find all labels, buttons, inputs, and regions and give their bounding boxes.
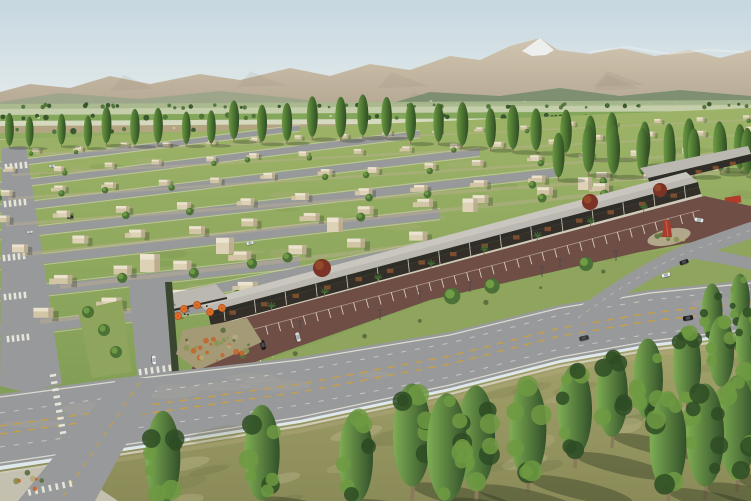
shrub xyxy=(539,286,542,289)
shrub xyxy=(35,478,38,481)
shrub xyxy=(233,349,239,355)
pedestrian xyxy=(187,308,189,310)
shrub xyxy=(247,343,250,346)
scene-canvas xyxy=(0,0,751,501)
shrub xyxy=(362,334,367,339)
storefront-glow xyxy=(293,294,300,298)
shrub xyxy=(25,470,31,476)
shrub xyxy=(191,348,197,354)
shrub xyxy=(239,350,244,355)
pedestrian xyxy=(217,316,219,318)
aerial-render: Aerial architectural rendering of a dese… xyxy=(0,0,751,501)
shrub xyxy=(203,338,209,344)
pedestrian xyxy=(187,314,189,316)
shrub xyxy=(681,237,685,241)
shrub xyxy=(187,342,189,344)
shrub xyxy=(222,338,227,343)
shrub xyxy=(185,338,188,341)
shrub xyxy=(17,479,21,483)
storefront-glow xyxy=(230,311,237,315)
storefront-glow xyxy=(387,269,394,273)
shrub xyxy=(184,345,190,351)
storefront-glow xyxy=(261,302,268,306)
shrub xyxy=(483,300,488,305)
pedestrian xyxy=(213,319,215,321)
shrub xyxy=(232,334,237,339)
shrub xyxy=(33,487,38,492)
shrub xyxy=(216,359,218,361)
storefront-glow xyxy=(419,260,426,264)
storefront-glow xyxy=(450,252,457,256)
shrub xyxy=(220,353,224,357)
shrub xyxy=(293,351,298,356)
storefront-glow xyxy=(545,227,552,231)
shrub xyxy=(220,328,225,333)
shrub xyxy=(674,237,680,243)
shrub xyxy=(220,342,223,345)
storefront-glow xyxy=(576,219,583,223)
storefront-glow xyxy=(671,194,678,198)
shrub xyxy=(195,346,198,349)
shrub xyxy=(39,478,44,483)
shrub xyxy=(227,345,231,349)
storefront-glow xyxy=(356,277,363,281)
storefront-glow xyxy=(608,210,615,214)
shrub xyxy=(205,351,209,355)
shrub xyxy=(601,270,605,274)
shrub xyxy=(210,343,213,346)
shrub xyxy=(418,319,422,323)
shrub xyxy=(30,476,36,482)
pedestrian xyxy=(215,311,217,313)
pedestrian xyxy=(206,305,208,307)
shrub xyxy=(211,337,216,342)
shrub xyxy=(198,345,203,350)
pedestrian xyxy=(184,313,186,315)
shrub xyxy=(233,339,236,342)
shrub xyxy=(199,355,204,360)
storefront-glow xyxy=(513,235,520,239)
shrub xyxy=(226,337,229,340)
shrub xyxy=(655,233,657,235)
